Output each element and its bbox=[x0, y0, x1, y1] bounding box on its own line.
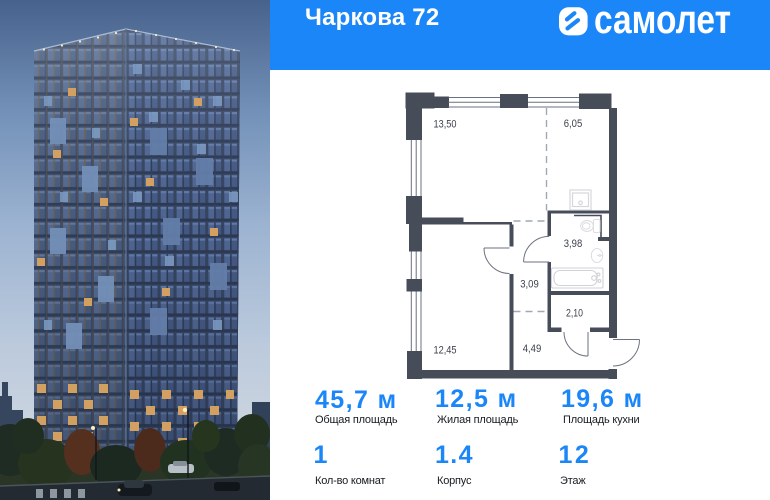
svg-text:6,05: 6,05 bbox=[564, 118, 583, 130]
svg-text:13,50: 13,50 bbox=[434, 119, 457, 131]
svg-text:3,09: 3,09 bbox=[520, 278, 539, 290]
svg-text:12,45: 12,45 bbox=[434, 345, 457, 357]
svg-text:4,49: 4,49 bbox=[523, 343, 542, 355]
svg-text:2,10: 2,10 bbox=[566, 308, 583, 320]
svg-text:3,98: 3,98 bbox=[564, 238, 583, 250]
